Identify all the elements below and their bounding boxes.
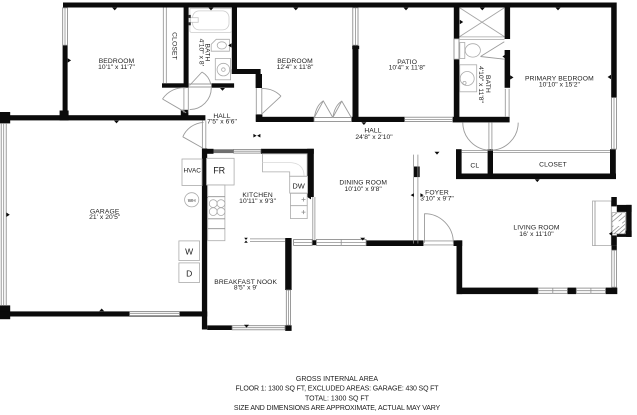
svg-text:CLOSET: CLOSET	[170, 32, 177, 60]
svg-text:10'10" x 9'8": 10'10" x 9'8"	[345, 186, 383, 193]
svg-text:SIZE AND DIMENSIONS ARE APPROX: SIZE AND DIMENSIONS ARE APPROXIMATE, ACT…	[234, 405, 441, 412]
svg-text:21' x 20'5": 21' x 20'5"	[89, 214, 121, 221]
svg-text:4'10" x 8': 4'10" x 8'	[198, 39, 205, 66]
svg-text:W: W	[185, 246, 193, 256]
svg-text:GROSS INTERNAL AREA: GROSS INTERNAL AREA	[296, 376, 379, 383]
svg-text:FLOOR 1: 1300 SQ FT, EXCLUDED: FLOOR 1: 1300 SQ FT, EXCLUDED AREAS: GAR…	[236, 386, 440, 393]
svg-text:10'11" x 9'3": 10'11" x 9'3"	[239, 198, 276, 205]
svg-text:DW: DW	[292, 182, 305, 191]
svg-text:D: D	[186, 268, 192, 278]
svg-text:16' x 11'10": 16' x 11'10"	[519, 231, 554, 238]
svg-text:FR: FR	[213, 165, 225, 175]
svg-text:4'10" x 11'8": 4'10" x 11'8"	[477, 66, 484, 103]
svg-text:WH: WH	[188, 198, 196, 203]
svg-text:HVAC: HVAC	[184, 167, 202, 174]
svg-text:CLOSET: CLOSET	[539, 161, 567, 168]
svg-text:10'4" x 11'8": 10'4" x 11'8"	[389, 65, 426, 72]
svg-text:10'1" x 11'7": 10'1" x 11'7"	[98, 64, 135, 71]
svg-text:CL: CL	[470, 162, 479, 169]
svg-text:BATH: BATH	[484, 75, 491, 93]
svg-text:24'8" x 2'10": 24'8" x 2'10"	[355, 134, 393, 141]
svg-text:TOTAL: 1300 SQ FT: TOTAL: 1300 SQ FT	[305, 395, 370, 402]
svg-text:7'5" x 6'6": 7'5" x 6'6"	[207, 119, 237, 126]
svg-text:10'10" x 15'2": 10'10" x 15'2"	[539, 81, 581, 88]
svg-text:8'5" x 9': 8'5" x 9'	[234, 285, 258, 292]
svg-text:12'4" x 11'8": 12'4" x 11'8"	[277, 64, 314, 71]
svg-text:3'10" x 9'7": 3'10" x 9'7"	[420, 195, 454, 202]
